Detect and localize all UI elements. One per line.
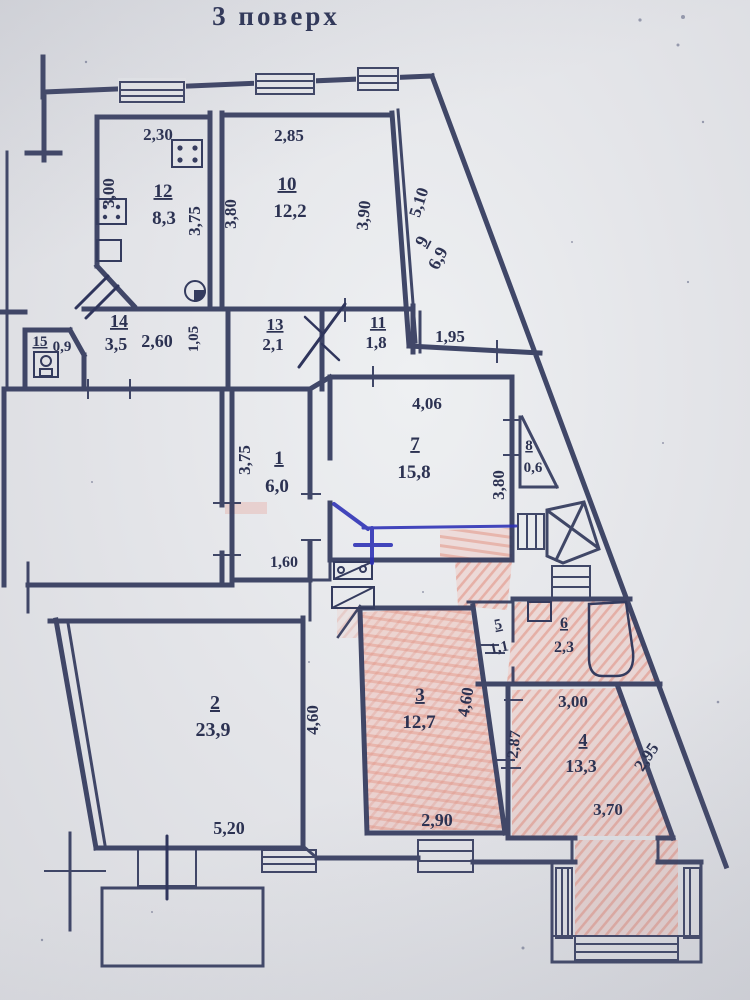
room-15-number: 15	[33, 334, 48, 350]
dim-2-90-room3: 2,90	[421, 810, 453, 830]
dim-2-87-room4: 2,87	[505, 730, 525, 760]
room-15-area: 0,9	[53, 339, 72, 355]
room-2-region	[56, 618, 303, 848]
dim-1-95: 1,95	[435, 327, 465, 346]
floor-plan-drawing: 128,31012,296,9143,5132,1111,8150,916,07…	[0, 0, 750, 1000]
room-7-area: 15,8	[397, 462, 430, 483]
room-3-number: 3	[415, 685, 425, 706]
room-4-number: 4	[579, 730, 588, 750]
dim-3-70-room4: 3,70	[593, 800, 623, 819]
dim-3-90-room10: 3,90	[353, 200, 375, 232]
dim-2-60-room14: 2,60	[141, 331, 173, 351]
meter-dial-icon	[338, 567, 344, 573]
scanned-floor-plan: 3 поверх	[0, 0, 750, 1000]
room-7-number: 7	[410, 434, 420, 455]
room-10-area: 12,2	[273, 201, 306, 222]
dim-3-80-room10: 3,80	[221, 199, 240, 229]
dim-1-60-room1: 1,60	[270, 554, 298, 571]
dim-3-00-room12: 3,00	[99, 178, 118, 208]
room-8-area: 0,6	[524, 460, 543, 476]
room-13-area: 2,1	[262, 335, 283, 354]
vent-slash-icon	[332, 587, 374, 608]
room-8-number: 8	[525, 438, 533, 454]
room-10-number: 10	[278, 174, 297, 195]
dim-2-85-room10: 2,85	[274, 126, 304, 145]
room-14-area: 3,5	[105, 334, 128, 354]
room-2-area: 23,9	[196, 719, 231, 741]
room-11-number: 11	[370, 313, 386, 332]
room-6-region	[513, 599, 657, 683]
room-13-number: 13	[267, 315, 284, 334]
room-2-number: 2	[210, 692, 220, 714]
dim-3-75-room12: 3,75	[185, 206, 204, 236]
meter-dial-icon	[360, 566, 366, 572]
dim-4-06-room7: 4,06	[412, 394, 442, 413]
dim-3-80-room7: 3,80	[489, 470, 508, 500]
balcony-hatch	[575, 840, 678, 936]
dim-1-05: 1,05	[186, 326, 202, 352]
dim-3-75-room1: 3,75	[235, 445, 254, 475]
room-12-area: 8,3	[152, 208, 176, 229]
room-1-area: 6,0	[265, 476, 289, 497]
dim-4-60-room2: 4,60	[303, 705, 322, 735]
room-6-number: 6	[560, 615, 568, 632]
room-4-area: 13,3	[565, 756, 597, 776]
room-6-area: 2,3	[554, 639, 574, 656]
room-12-number: 12	[154, 181, 173, 202]
blue-wall-line	[363, 526, 516, 528]
dim-3-00-room4: 3,00	[558, 692, 588, 711]
room-14-number: 14	[110, 311, 128, 331]
dim-2-30-room12: 2,30	[143, 125, 173, 144]
dim-5-20-room2: 5,20	[213, 818, 245, 838]
room-1-number: 1	[274, 448, 284, 469]
room-11-area: 1,8	[365, 333, 386, 352]
room-3-area: 12,7	[402, 712, 436, 733]
